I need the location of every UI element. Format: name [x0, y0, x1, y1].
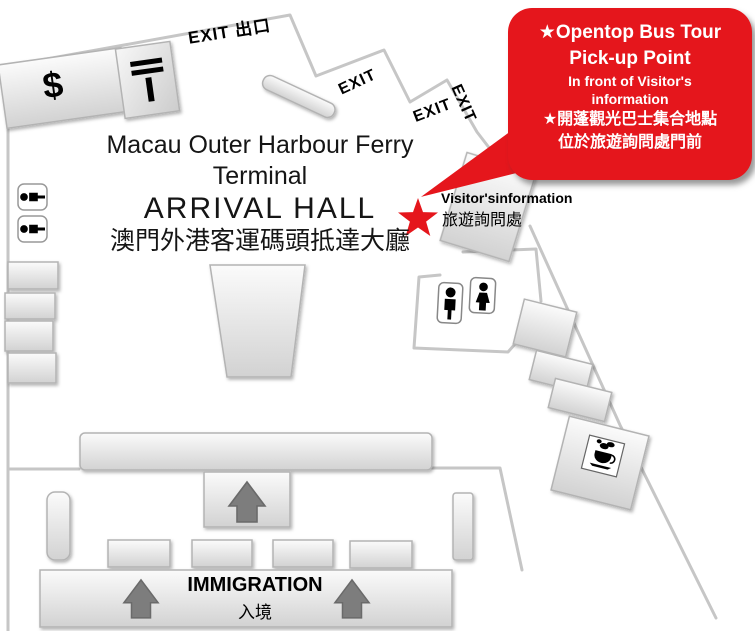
- wall-lower-right: [432, 468, 522, 570]
- immigration-label-en: IMMIGRATION: [150, 574, 360, 597]
- wall-corridor-right: [530, 226, 716, 618]
- left-counter-3: [5, 321, 53, 351]
- immigration-counter-1: [108, 540, 170, 567]
- long-counter-bar: [80, 433, 432, 470]
- icon-stem: [145, 77, 154, 102]
- terminal-name-line2: Terminal: [90, 161, 430, 192]
- icon-bar: [131, 66, 163, 75]
- terminal-map-page: ★Opentop Bus Tour Pick-up Point In front…: [0, 0, 755, 631]
- visitor-info-label-en: Visitor'sinformation: [441, 190, 572, 206]
- pillar-left: [47, 492, 70, 560]
- visitor-info-label-zh: 旅遊詢問處: [442, 206, 522, 230]
- callout-title-line1: ★Opentop Bus Tour: [508, 20, 752, 46]
- terminal-name-line1: Macau Outer Harbour Ferry: [90, 130, 430, 161]
- left-counter-4: [8, 353, 56, 383]
- immigration-label-zh: 入境: [150, 598, 360, 623]
- callout-chinese-line2: 位於旅遊詢問處門前: [508, 131, 752, 154]
- immigration-counter-2: [192, 540, 252, 567]
- diagonal-pillar: [260, 73, 337, 120]
- immigration-counter-4: [350, 541, 412, 568]
- left-counter-2: [5, 293, 55, 319]
- wall-restroom-room: [414, 275, 522, 352]
- immigration-counter-3: [273, 540, 333, 567]
- pillar-right: [453, 493, 473, 560]
- callout-subtitle-line1: In front of Visitor's: [508, 72, 752, 90]
- callout-subtitle-line2: information: [508, 90, 752, 108]
- terminal-title: Macau Outer Harbour Ferry Terminal ARRIV…: [90, 130, 430, 257]
- callout-title-line2: Pick-up Point: [508, 46, 752, 72]
- arrival-hall-label: ARRIVAL HALL: [90, 192, 430, 226]
- callout-chinese-line1: ★開蓬觀光巴士集合地點: [508, 108, 752, 131]
- double-bar-T-icon: [130, 58, 168, 104]
- currency-exchange-booth: [0, 48, 130, 129]
- arrival-hall-label-zh: 澳門外港客運碼頭抵達大廳: [90, 226, 430, 257]
- left-counter-1: [8, 262, 58, 289]
- pickup-callout: ★Opentop Bus Tour Pick-up Point In front…: [508, 8, 752, 180]
- central-ramp: [210, 265, 305, 377]
